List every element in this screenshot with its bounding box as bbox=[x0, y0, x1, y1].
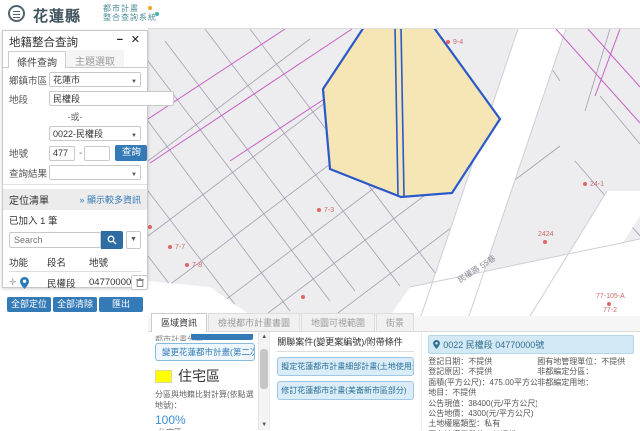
query-button[interactable]: 查詢 bbox=[115, 145, 147, 161]
district-label: 鄉鎮市區 bbox=[9, 73, 49, 87]
locate-all-button[interactable]: 全部定位 bbox=[7, 297, 51, 312]
svg-text:77-2: 77-2 bbox=[603, 307, 617, 314]
zone-info-column: 都市計畫分區 變更花蓮都市計畫(第二次通盤檢討) 住宅區 分區與地籍比對計算(依… bbox=[148, 332, 269, 430]
parcel-number-input[interactable] bbox=[49, 146, 75, 161]
detail-item: 公告現值：38400(元/平方公尺) bbox=[428, 399, 537, 409]
table-header-row: 功能 段名 地號 bbox=[9, 253, 141, 272]
detail-item: 非都編定用地： bbox=[537, 378, 634, 388]
action-buttons: 全部定位 全部清除 匯出 bbox=[3, 292, 147, 312]
cadastral-query-panel: 地籍整合查詢 − ✕ 條件查詢 主題選取 鄉鎮市區 花蓮市 ▼ 地段 -或- bbox=[2, 30, 148, 288]
scroll-up-icon[interactable]: ▲ bbox=[259, 334, 269, 340]
detail-item: 公告地價：4300(元/平方公尺) bbox=[428, 409, 537, 419]
or-separator: -或- bbox=[9, 110, 141, 123]
scrollbar-thumb[interactable] bbox=[260, 349, 268, 389]
panel-tabs: 條件查詢 主題選取 bbox=[3, 50, 147, 68]
svg-text:9-4: 9-4 bbox=[453, 39, 463, 46]
logo-dot-orange-icon bbox=[148, 6, 152, 10]
tab-region-info[interactable]: 區域資訊 bbox=[151, 313, 207, 332]
related-case-button-1[interactable]: 擬定花蓮都市計畫細部計畫(土地使用分區管制要點)案 bbox=[277, 357, 414, 376]
zone-percentage: 100% bbox=[155, 413, 255, 427]
search-row: ▼ bbox=[3, 228, 147, 252]
close-button[interactable]: ✕ bbox=[131, 33, 140, 47]
parcel-details-grid: 登記日期：不提供 登記原因：不提供 面積(平方公尺)：475.00平方公尺 地目… bbox=[428, 357, 634, 431]
delete-row-button[interactable] bbox=[131, 275, 148, 290]
related-cases-column: 關聯案件(變更案編號)/附帶條件 擬定花蓮都市計畫細部計畫(土地使用分區管制要點… bbox=[269, 332, 421, 430]
parcel-label: 地號 bbox=[9, 146, 49, 160]
section-input[interactable] bbox=[49, 91, 174, 106]
panel-title: 地籍整合查詢 bbox=[9, 37, 78, 49]
detail-item: 非都編定分區： bbox=[537, 367, 634, 377]
result-select[interactable]: ▼ bbox=[49, 165, 141, 180]
related-case-button-2[interactable]: 修訂花蓮都市計畫(美崙新市區部分) bbox=[277, 381, 414, 400]
svg-text:2424: 2424 bbox=[538, 231, 554, 238]
clipped-caption-row: 都市計畫分區 bbox=[155, 334, 255, 341]
svg-text:7-7: 7-7 bbox=[175, 244, 185, 251]
parcel-details-title: 0022 民權段 04770000號 bbox=[443, 338, 544, 351]
locate-table: 功能 段名 地號 ✛ 民權段 04770000 bbox=[3, 252, 147, 292]
bottom-info-panel: 區域資訊 檢視都市計畫書圖 地圖可視範圍 街景 都市計畫分區 變更花蓮都市計畫(… bbox=[148, 316, 640, 431]
detail-item: 登記原因：不提供 bbox=[428, 367, 537, 377]
zone-row: 住宅區 bbox=[155, 366, 255, 386]
calc-caption: 分區與地籍比對計算(依點選地號)： bbox=[155, 389, 255, 411]
tab-street-view[interactable]: 街景 bbox=[376, 313, 414, 331]
parcel-details-left: 登記日期：不提供 登記原因：不提供 面積(平方公尺)：475.00平方公尺 地目… bbox=[428, 357, 537, 431]
map-pin-icon[interactable] bbox=[20, 277, 29, 289]
add-icon[interactable]: ✛ bbox=[9, 277, 17, 288]
parcel-details-column: 0022 民權段 04770000號 登記日期：不提供 登記原因：不提供 面積(… bbox=[421, 332, 640, 430]
search-options-dropdown[interactable]: ▼ bbox=[126, 231, 141, 249]
district-select[interactable]: 花蓮市 ▼ bbox=[49, 72, 141, 87]
locate-list-header: 定位清單 » 顯示較多資訊 bbox=[3, 189, 147, 210]
tab-theme-select[interactable]: 主題選取 bbox=[66, 50, 124, 67]
svg-text:7-8: 7-8 bbox=[192, 262, 202, 269]
svg-text:24-1: 24-1 bbox=[590, 181, 604, 188]
panel-header: 地籍整合查詢 − ✕ bbox=[3, 31, 147, 50]
plan-case-label: 變更花蓮都市計畫(第二次通盤檢討) bbox=[162, 346, 255, 358]
chevron-down-icon: ▼ bbox=[131, 76, 137, 88]
section-code-select[interactable]: 0022-民權段 ▼ bbox=[49, 126, 141, 141]
detail-item: 地目：不提供 bbox=[428, 388, 537, 398]
bottom-tabs: 區域資訊 檢視都市計畫書圖 地圖可視範圍 街景 bbox=[148, 316, 640, 332]
zone-color-swatch bbox=[155, 370, 172, 383]
svg-text:7-3: 7-3 bbox=[324, 207, 334, 214]
trash-icon bbox=[136, 278, 144, 287]
minimize-button[interactable]: − bbox=[117, 33, 123, 47]
search-input[interactable] bbox=[9, 232, 101, 248]
section-code-value: 0022-民權段 bbox=[53, 129, 103, 139]
logo-dot-teal-icon bbox=[155, 12, 159, 16]
scroll-down-icon[interactable]: ▼ bbox=[259, 422, 269, 428]
svg-text:77-105-A: 77-105-A bbox=[596, 293, 625, 300]
parcel-details-right: 國有地管理單位：不提供 非都編定分區： 非都編定用地： bbox=[537, 357, 634, 431]
detail-item: 國有地管理單位：不提供 bbox=[537, 357, 634, 367]
detail-item: 登記日期：不提供 bbox=[428, 357, 537, 367]
chevron-down-icon: ▼ bbox=[131, 169, 137, 181]
col-parcel: 地號 bbox=[89, 255, 141, 269]
col-function: 功能 bbox=[9, 255, 47, 269]
added-count-text: 已加入 1 筆 bbox=[3, 210, 147, 228]
table-row: ✛ 民權段 04770000 bbox=[9, 272, 141, 292]
show-more-link[interactable]: » 顯示較多資訊 bbox=[79, 193, 141, 206]
chevron-down-icon: ▼ bbox=[131, 130, 137, 142]
zone-name: 住宅區 bbox=[178, 366, 220, 386]
tab-map-visible-extent[interactable]: 地圖可視範圍 bbox=[301, 313, 375, 331]
zone-percentage-label: 住宅區 bbox=[158, 427, 255, 430]
app-header: 花蓮縣 都市計畫 整合查詢系統 bbox=[0, 0, 640, 28]
row-parcel-number: 04770000 bbox=[89, 277, 131, 288]
query-form: 鄉鎮市區 花蓮市 ▼ 地段 -或- 0022-民權段 ▼ 地號 bbox=[3, 68, 147, 185]
app-subtitle-line2: 整合查詢系統 bbox=[103, 13, 157, 22]
related-cases-header: 關聯案件(變更案編號)/附帶條件 bbox=[277, 335, 414, 352]
parcel-dash: - bbox=[79, 148, 82, 159]
parcel-details-header: 0022 民權段 04770000號 bbox=[428, 335, 634, 354]
menu-icon[interactable] bbox=[8, 5, 25, 22]
detail-item: 土地權屬類型：私有 bbox=[428, 419, 537, 429]
clipped-blue-button[interactable] bbox=[191, 334, 253, 340]
col-section: 段名 bbox=[47, 255, 89, 269]
plan-case-link[interactable]: 變更花蓮都市計畫(第二次通盤檢討) bbox=[155, 343, 255, 361]
map-pin-icon bbox=[433, 340, 440, 349]
cadastral-map-svg: 9-4 24-1 2424 77-105-A 77-2 7-3 7-7 7-8 … bbox=[148, 29, 640, 318]
region-info-content: 都市計畫分區 變更花蓮都市計畫(第二次通盤檢討) 住宅區 分區與地籍比對計算(依… bbox=[148, 332, 640, 430]
scrollbar[interactable]: ▲ ▼ bbox=[258, 332, 269, 430]
result-label: 查詢結果 bbox=[9, 166, 49, 180]
search-icon bbox=[107, 235, 117, 245]
map-canvas[interactable]: 9-4 24-1 2424 77-105-A 77-2 7-3 7-7 7-8 … bbox=[148, 28, 640, 318]
tab-view-plan-documents[interactable]: 檢視都市計畫書圖 bbox=[208, 313, 300, 331]
locate-list-title: 定位清單 bbox=[9, 192, 49, 207]
app-title: 花蓮縣 bbox=[33, 5, 81, 26]
clear-all-button[interactable]: 全部清除 bbox=[53, 297, 97, 312]
district-value: 花蓮市 bbox=[53, 75, 80, 85]
row-section-name: 民權段 bbox=[47, 276, 89, 290]
app-root: 9-4 24-1 2424 77-105-A 77-2 7-3 7-7 7-8 … bbox=[0, 0, 640, 431]
parcel-subnumber-input[interactable] bbox=[84, 146, 110, 161]
search-button[interactable] bbox=[101, 231, 123, 249]
section-label: 地段 bbox=[9, 92, 49, 106]
export-button[interactable]: 匯出 bbox=[99, 297, 143, 312]
tab-condition-query[interactable]: 條件查詢 bbox=[8, 51, 66, 68]
detail-item: 面積(平方公尺)：475.00平方公尺 bbox=[428, 378, 537, 388]
